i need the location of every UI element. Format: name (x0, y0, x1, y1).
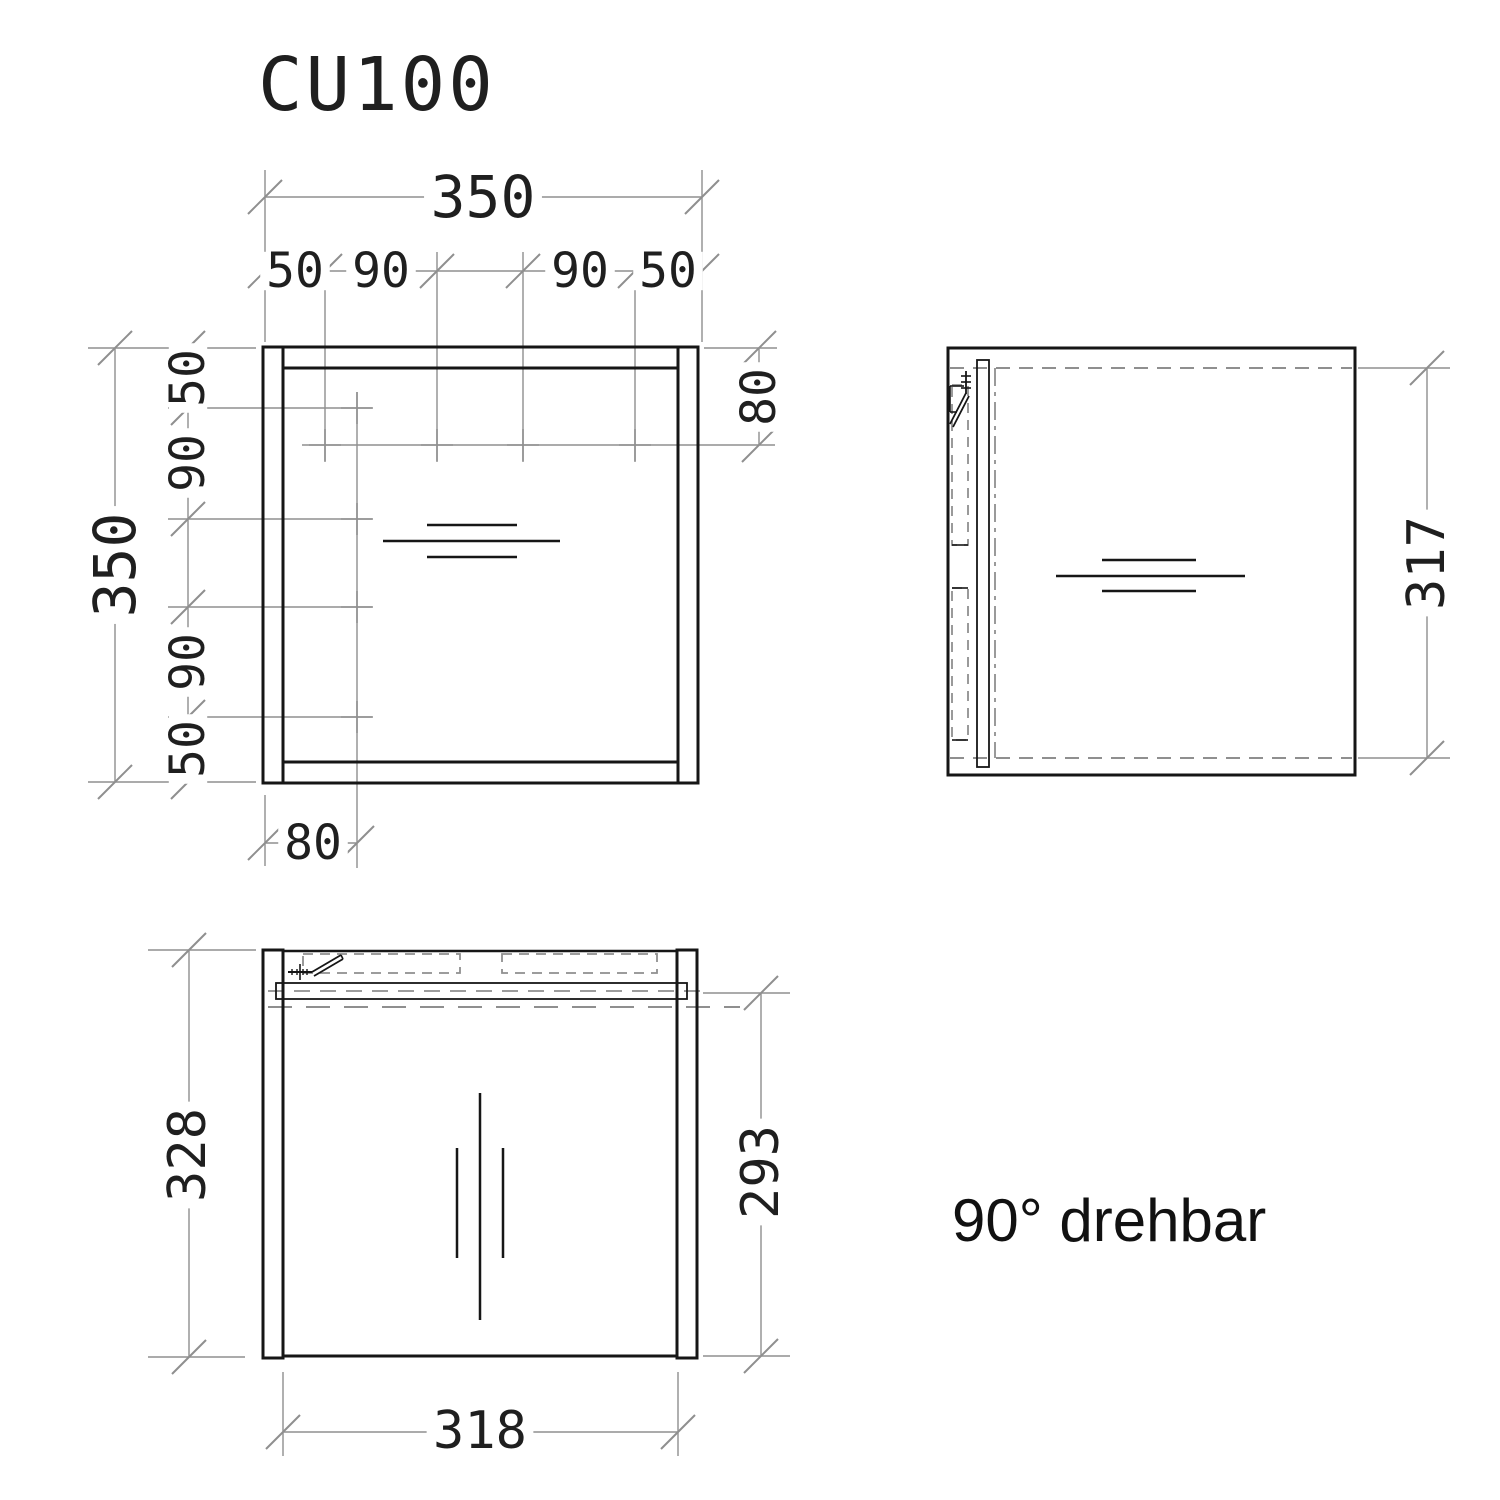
technical-drawing: 35050909050350509090508080317328293318 (0, 0, 1500, 1500)
dimension-text: 328 (158, 1102, 218, 1209)
dimension-value: 50 (639, 243, 697, 299)
dimension-text: 317 (1397, 510, 1457, 617)
hidden-hinge-outline (952, 588, 968, 740)
dimension-value: 350 (431, 163, 536, 231)
dimension-value: 80 (731, 368, 787, 426)
panel-outline (283, 347, 678, 368)
dimension-value: 293 (731, 1125, 791, 1219)
rotation-note: 90° drehbar (952, 1186, 1266, 1255)
object-line (341, 955, 343, 959)
hidden-hinge-outline (502, 954, 657, 973)
panel-outline (678, 347, 698, 783)
dimension-value: 328 (158, 1108, 218, 1202)
panel-outline (977, 360, 989, 767)
panel-outline (948, 348, 1355, 775)
dimension-value: 90 (352, 243, 410, 299)
dimension-text: 318 (427, 1401, 534, 1461)
dimension-value: 50 (160, 720, 216, 778)
dimension-text: 80 (278, 815, 348, 871)
panel-outline (677, 950, 697, 1358)
dimension-value: 50 (160, 349, 216, 407)
dimension-text: 80 (731, 362, 787, 432)
dimension-value: 318 (433, 1401, 527, 1461)
dimension-text: 90 (160, 627, 216, 697)
dimension-text: 50 (633, 243, 703, 299)
dimension-text: 350 (424, 163, 542, 231)
panel-outline (283, 762, 678, 783)
hidden-hinge-outline (952, 385, 968, 545)
dimension-text: 50 (160, 714, 216, 784)
dimension-text: 50 (260, 243, 330, 299)
dimension-value: 317 (1397, 516, 1457, 610)
dimension-value: 90 (160, 434, 216, 492)
dimension-text: 90 (160, 428, 216, 498)
dimension-value: 80 (284, 815, 342, 871)
drawing-title: CU100 (258, 42, 496, 128)
dimension-text: 293 (731, 1119, 791, 1226)
dimension-text: 350 (81, 506, 149, 624)
dimension-value: 350 (81, 513, 149, 618)
dimension-text: 90 (346, 243, 416, 299)
canvas: 35050909050350509090508080317328293318 C… (0, 0, 1500, 1500)
panel-outline (263, 950, 283, 1358)
dimension-value: 90 (160, 633, 216, 691)
dimension-text: 50 (160, 343, 216, 413)
dimension-value: 50 (266, 243, 324, 299)
dimension-value: 90 (551, 243, 609, 299)
dimension-text: 90 (545, 243, 615, 299)
